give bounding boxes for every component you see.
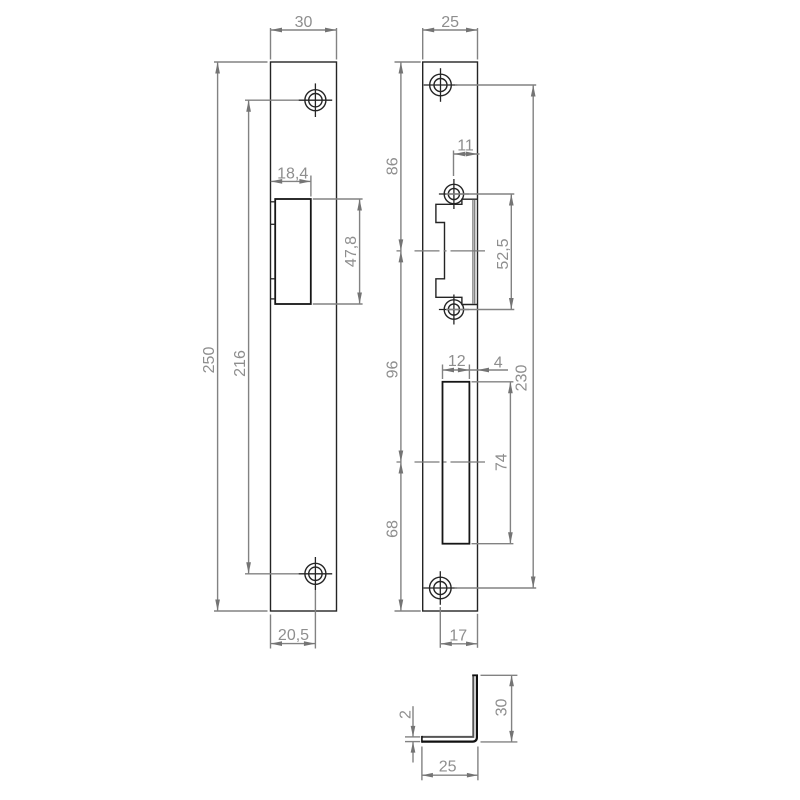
svg-text:74: 74 (493, 453, 510, 471)
svg-text:96: 96 (384, 361, 401, 379)
svg-text:230: 230 (514, 365, 531, 392)
svg-text:11: 11 (457, 138, 474, 155)
svg-text:250: 250 (201, 347, 218, 374)
svg-text:4: 4 (494, 355, 503, 372)
svg-text:47,8: 47,8 (343, 236, 360, 267)
svg-text:12: 12 (448, 353, 466, 370)
svg-text:68: 68 (384, 520, 401, 538)
svg-text:86: 86 (384, 157, 401, 175)
svg-text:17: 17 (449, 628, 467, 645)
svg-text:18,4: 18,4 (277, 165, 308, 182)
svg-text:52,5: 52,5 (495, 238, 512, 269)
svg-text:30: 30 (494, 699, 511, 717)
svg-text:216: 216 (232, 350, 249, 377)
svg-text:30: 30 (295, 14, 313, 31)
svg-text:20,5: 20,5 (278, 627, 309, 644)
svg-text:25: 25 (439, 758, 457, 775)
svg-text:25: 25 (441, 14, 459, 31)
svg-text:2: 2 (397, 710, 414, 719)
